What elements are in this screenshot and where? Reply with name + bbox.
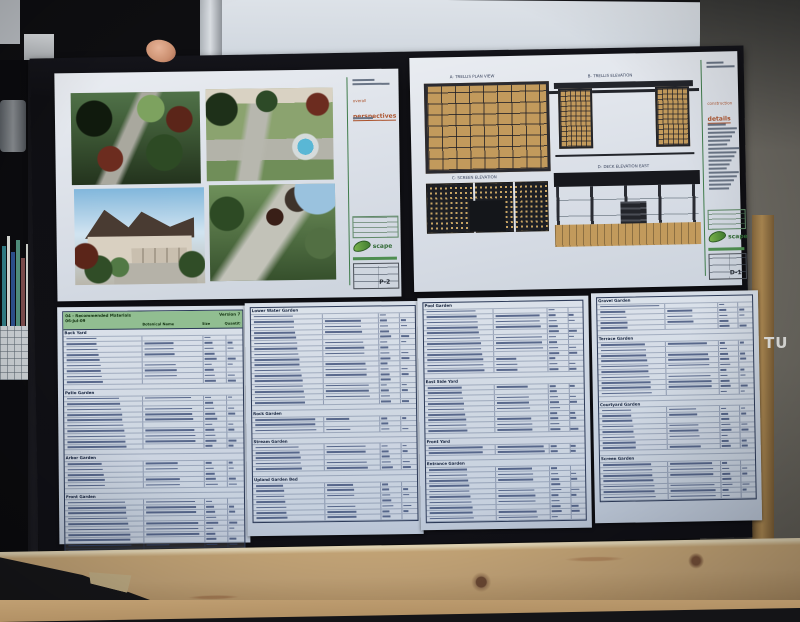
schedule-cell: [570, 426, 584, 431]
schedule-cell: [380, 394, 401, 399]
schedule-cell: [721, 471, 741, 476]
schedule-cell: [550, 493, 571, 498]
schedule-cell: [144, 526, 205, 531]
schedule-cell: [65, 461, 144, 466]
logo-band: [708, 247, 744, 251]
schedule-cell: [547, 307, 568, 312]
schedule-cell: [64, 347, 143, 352]
schedule-cell: [495, 427, 549, 432]
details-sheet: A- TRELLIS PLAN VIEW B- TRELLIS ELEVATIO…: [409, 51, 742, 292]
schedule-cell: [719, 346, 739, 351]
schedule-cell: [226, 351, 242, 356]
schedule-cell: [494, 362, 548, 367]
schedule-cell: [741, 443, 755, 448]
schedule-cell: [204, 417, 227, 422]
schedule-cell: [144, 477, 205, 482]
schedule-cell: [497, 515, 551, 520]
schedule-cell: [204, 482, 227, 487]
backyard-spa-render: [206, 87, 334, 181]
schedule-cell: [203, 378, 226, 383]
schedule-cell: [228, 510, 244, 515]
schedule-cell: [325, 465, 381, 470]
schedule-cell: [494, 345, 548, 350]
schedule-cell: [720, 428, 740, 433]
schedule-cell: [548, 329, 569, 334]
schedule-cell: [569, 389, 583, 394]
schedule-cell: [741, 433, 755, 438]
text-line: [709, 171, 739, 173]
schedule-cell: [324, 383, 380, 388]
column-headers: Botanical NameSizeQuantity: [65, 322, 240, 329]
schedule-cell: [204, 428, 227, 433]
schedule-cell: [550, 449, 571, 454]
schedule-cell: [571, 503, 585, 508]
schedule-cell: [64, 352, 143, 357]
schedule-cell: [571, 476, 585, 481]
schedule-cell: [143, 433, 204, 438]
text-line: [708, 155, 734, 157]
schedule-cell: [324, 427, 380, 432]
schedule-cell: [323, 345, 379, 350]
schedule-cell: [143, 461, 204, 466]
schedule-cell: [719, 351, 739, 356]
schedule-cell: [64, 412, 143, 417]
titleblock-client: [353, 117, 389, 122]
text-line: [708, 135, 732, 137]
schedule-cell: [741, 466, 755, 471]
schedule-cell: [204, 395, 227, 400]
schedule-cell: [144, 510, 205, 515]
schedule-cell: [402, 465, 417, 470]
schedule-cell: [720, 433, 740, 438]
schedule-cell: [227, 378, 243, 383]
schedule-cell: [571, 482, 585, 487]
schedule-cell: [495, 400, 549, 405]
schedule-cell: [227, 411, 243, 416]
schedule-cell: [571, 514, 585, 519]
schedule-cell: [379, 367, 400, 372]
schedule-cell: [65, 511, 144, 516]
text-line: [707, 65, 735, 67]
schedule-cell: [568, 313, 582, 318]
trellis-elevation-drawing: [554, 80, 695, 157]
text-line: [352, 83, 389, 85]
schedule-cell: [325, 488, 381, 493]
sheet-number: P-2: [379, 279, 390, 286]
presentation-board: overall perspectives scape P-2 A- TRELLI…: [30, 45, 753, 550]
schedule-cell: [203, 346, 226, 351]
schedule-cell: [548, 361, 569, 366]
schedule-cell: [494, 351, 548, 356]
schedule-cell: [227, 438, 243, 443]
schedule-cell: [571, 509, 585, 514]
schedule-cell: [142, 362, 203, 367]
schedule-cell: [228, 466, 244, 471]
schedule-cell: [227, 444, 243, 449]
schedule-cell: [738, 307, 752, 312]
schedule-cell: [719, 357, 739, 362]
schedule-cell: [548, 318, 569, 323]
schedule-cell: [495, 384, 549, 389]
schedule-cell: [227, 433, 243, 438]
schedule-cell: [381, 487, 402, 492]
book-spine: [11, 252, 15, 336]
schedule-cell: [228, 477, 244, 482]
schedule-cell: [204, 433, 227, 438]
schedule-cell: [403, 503, 418, 508]
schedule-cell: [739, 351, 753, 356]
schedule-table: Gravel GardenTerrace GardenCourtyard Gar…: [596, 294, 757, 502]
schedule-cell: [379, 329, 400, 334]
schedule-cell: [325, 482, 381, 487]
schedule-cell: [379, 350, 400, 355]
schedule-cell: [739, 362, 753, 367]
schedule-cell: [379, 345, 400, 350]
schedule-cell: [549, 405, 570, 410]
schedule-cell: [720, 406, 740, 411]
schedule-cell: [495, 411, 549, 416]
schedule-cell: [720, 417, 740, 422]
schedule-cell: [570, 400, 584, 405]
schedule-cell: [381, 454, 402, 459]
schedule-cell: [721, 482, 741, 487]
logo-band: [353, 257, 397, 261]
schedule-cell: [228, 542, 244, 547]
book-spine: [16, 240, 20, 336]
schedule-cell: [143, 428, 204, 433]
drawing-title: B- TRELLIS ELEVATION: [588, 72, 633, 78]
schedule-cell: [205, 537, 228, 542]
schedule-cell: [568, 329, 582, 334]
schedule-cell: [497, 509, 551, 514]
schedule-cell: [401, 383, 416, 388]
schedule-cell: [740, 406, 754, 411]
schedule-cell: [380, 383, 401, 388]
schedule-cell: [380, 443, 401, 448]
schedule-cell: [719, 368, 739, 373]
schedule-cell: [64, 363, 143, 368]
text-line: [708, 139, 730, 141]
text-line: [708, 151, 736, 153]
schedule-cell: [740, 378, 754, 383]
solid-panel: [469, 200, 506, 232]
schedule-cell: [323, 313, 379, 318]
titleblock-notes: [708, 123, 741, 192]
schedule-cell: [65, 500, 144, 505]
schedule-cell: [65, 527, 144, 532]
schedule-cell: [142, 352, 203, 357]
schedule-cell: [323, 318, 379, 323]
schedule-cell: [227, 400, 243, 405]
schedule-cell: [143, 412, 204, 417]
schedule-cell: [65, 472, 144, 477]
schedule-cell: [144, 505, 205, 510]
text-line: [709, 183, 731, 185]
schedule-cell: [326, 509, 382, 514]
schedule-cell: [203, 373, 226, 378]
schedule-cell: [203, 351, 226, 356]
schedule-cell: [721, 477, 741, 482]
schedule-cell: [143, 439, 204, 444]
schedule-cell: [568, 318, 582, 323]
schedule-cell: [548, 367, 569, 372]
schedule-cell: [495, 395, 549, 400]
schedule-cell: [402, 426, 417, 431]
schedule-cell: [721, 438, 741, 443]
schedule-cell: [228, 499, 244, 504]
schedule-cell: [739, 340, 753, 345]
schedule-cell: [323, 340, 379, 345]
schedule-cell: [718, 324, 738, 329]
schedule-cell: [401, 388, 416, 393]
schedule-cell: [549, 389, 570, 394]
schedule-cell: [568, 307, 582, 312]
schedule-cell: [401, 399, 416, 404]
schedule-cell: [143, 422, 204, 427]
schedule-cell: [550, 498, 571, 503]
plant-schedule-sheet-1: 04 - Recommended MaterialsVersion 706-Ju…: [57, 305, 250, 544]
schedule-cell: [401, 361, 416, 366]
schedule-cell: [323, 329, 379, 334]
schedule-cell: [738, 318, 752, 323]
schedule-cell: [550, 482, 571, 487]
schedule-cell: [494, 319, 548, 324]
schedule-cell: [253, 488, 325, 493]
schedule-cell: [227, 395, 243, 400]
perspectives-sheet: overall perspectives scape P-2: [54, 69, 401, 302]
foundation-shrubs: [74, 187, 205, 285]
schedule-cell: [228, 520, 244, 525]
schedule-cell: [669, 493, 722, 498]
schedule-cell: [495, 389, 549, 394]
schedule-cell: [203, 368, 226, 373]
schedule-cell: [381, 493, 402, 498]
revision-table: [708, 209, 746, 230]
text-line: [709, 179, 734, 181]
text-line: [352, 79, 374, 81]
schedule-cell: [381, 482, 402, 487]
schedule-cell: [569, 334, 583, 339]
schedule-cell: [495, 416, 549, 421]
deck-skirt: [555, 222, 701, 247]
schedule-cell: [400, 334, 415, 339]
schedule-cell: [400, 329, 415, 334]
schedule-cell: [549, 384, 570, 389]
schedule-cell: [226, 335, 242, 340]
schedule-cell: [204, 438, 227, 443]
schedule-cell: [63, 341, 142, 346]
schedule-cell: [323, 351, 379, 356]
schedule-cell: [549, 394, 570, 399]
schedule-cell: [143, 444, 204, 449]
schedule-cell: [204, 422, 227, 427]
deck-elevation-drawing: [554, 170, 702, 249]
lattice-panel: [655, 86, 690, 147]
schedule-cell: [65, 516, 144, 521]
drawing-title: D- DECK ELEVATION EAST: [598, 163, 650, 169]
schedule-cell: [721, 461, 741, 466]
schedule-cell: [739, 373, 753, 378]
schedule-cell: [569, 366, 583, 371]
schedule-row: [253, 514, 417, 522]
schedule-cell: [324, 356, 380, 361]
schedule-cell: [65, 483, 144, 488]
schedule-cell: [740, 417, 754, 422]
schedule-cell: [568, 323, 582, 328]
schedule-cell: [204, 406, 227, 411]
heading-small: construction: [707, 101, 741, 106]
schedule-cell: [324, 388, 380, 393]
titleblock-address: [706, 61, 736, 70]
schedule-cell: [204, 461, 227, 466]
schedule-cell: [144, 542, 205, 547]
schedule-cell: [721, 466, 741, 471]
schedule-cell: [205, 504, 228, 509]
shelf-object: [0, 100, 26, 152]
lattice-panel: [558, 88, 593, 149]
schedule-cell: [324, 416, 380, 421]
schedule-cell: [325, 504, 381, 509]
schedule-cell: [740, 427, 754, 432]
schedule-cell: [381, 498, 402, 503]
schedule-cell: [144, 499, 205, 504]
titleblock-rule: [346, 77, 350, 285]
schedule-cell: [719, 362, 739, 367]
drawing-title: A- TRELLIS PLAN VIEW: [450, 73, 495, 79]
schedule-cell: [325, 449, 381, 454]
schedule-cell: [742, 493, 756, 498]
schedule-cell: [228, 504, 244, 509]
schedule-cell: [204, 466, 227, 471]
schedule-cell: [548, 351, 569, 356]
schedule-cell: [253, 515, 325, 520]
schedule-cell: [203, 335, 226, 340]
schedule-cell: [494, 340, 548, 345]
schedule-cell: [569, 394, 583, 399]
schedule-cell: [65, 478, 144, 483]
schedule-cell: [720, 389, 740, 394]
schedule-cell: [569, 356, 583, 361]
schedule-cell: [738, 313, 752, 318]
schedule-cell: [549, 427, 570, 432]
book-spine: [21, 258, 25, 336]
sheet-number-grid: [353, 263, 399, 290]
schedule-cell: [551, 509, 572, 514]
leaf-icon: [352, 238, 372, 253]
schedule-cell: [228, 537, 244, 542]
schedule-cell: [143, 466, 204, 471]
schedule-cell: [204, 477, 227, 482]
schedule-cell: [739, 367, 753, 372]
schedule-cell: [204, 444, 227, 449]
schedule-cell: [401, 377, 416, 382]
schedule-cell: [142, 357, 203, 362]
schedule-cell: [380, 377, 401, 382]
schedule-cell: [569, 345, 583, 350]
schedule-cell: [228, 460, 244, 465]
schedule-cell: [497, 504, 551, 509]
schedule-cell: [494, 324, 548, 329]
schedule-cell: [227, 427, 243, 432]
schedule-cell: [205, 526, 228, 531]
plant-schedule-sheet-2: Lower Water GardenRock GardenStream Gard…: [245, 301, 424, 536]
schedule-cell: [227, 406, 243, 411]
schedule-cell: [601, 494, 669, 500]
schedule-cell: [402, 459, 417, 464]
schedule-cell: [205, 499, 228, 504]
schedule-cell: [64, 358, 143, 363]
schedule-cell: [551, 514, 572, 519]
schedule-cell: [143, 379, 204, 384]
screen-elevation-drawing: [426, 181, 549, 234]
schedule-cell: [571, 466, 585, 471]
schedule-cell: [401, 356, 416, 361]
schedule-cell: [227, 357, 243, 362]
schedule-cell: [570, 421, 584, 426]
schedule-cell: [324, 378, 380, 383]
leaf-icon: [707, 229, 727, 244]
schedule-cell: [228, 531, 244, 536]
schedule-cell: [205, 531, 228, 536]
schedule-cell: [142, 346, 203, 351]
schedule-cell: [720, 411, 740, 416]
schedule-cell: [379, 340, 400, 345]
schedule-cell: [403, 509, 418, 514]
schedule-cell: [550, 444, 571, 449]
schedule-cell: [495, 405, 549, 410]
schedule-cell: [401, 393, 416, 398]
text-line: [708, 127, 737, 129]
schedule-cell: [493, 308, 547, 313]
schedule-cell: [496, 472, 550, 477]
schedule-cell: [571, 471, 585, 476]
schedule-cell: [495, 422, 549, 427]
schedule-cell: [400, 318, 415, 323]
text-line: [708, 131, 735, 133]
schedule-cell: [496, 444, 550, 449]
schedule-cell: [718, 313, 738, 318]
text-line: [706, 61, 723, 63]
schedule-cell: [64, 401, 143, 406]
schedule-cell: [64, 396, 143, 401]
plant-schedule-sheet-4: Gravel GardenTerrace GardenCourtyard Gar…: [591, 290, 762, 523]
text-line: [353, 117, 373, 119]
schedule-cell: [570, 405, 584, 410]
schedule-cell: [569, 361, 583, 366]
schedule-cell: [720, 384, 740, 389]
schedule-cell: [144, 537, 205, 542]
schedule-cell: [402, 443, 417, 448]
plant-schedule-sheet-3: Pool GardenEast Side YardFront YardEntra…: [417, 296, 592, 531]
schedule-cell: [203, 341, 226, 346]
schedule-cell: [721, 488, 741, 493]
schedule-cell: [64, 407, 143, 412]
schedule-cell: [739, 346, 753, 351]
schedule-cell: [205, 515, 228, 520]
schedule-cell: [741, 482, 755, 487]
garden-path-render: [71, 91, 201, 185]
schedule-cell: [142, 335, 203, 340]
schedule-cell: [63, 336, 142, 341]
schedule-cell: [381, 465, 402, 470]
schedule-cell: [64, 423, 143, 428]
schedule-cell: [64, 379, 143, 384]
schedule-cell: [65, 543, 144, 548]
schedule-cell: [144, 532, 205, 537]
schedule-cell: [569, 383, 583, 388]
schedule-cell: [548, 356, 569, 361]
deck-steps: [620, 201, 646, 226]
